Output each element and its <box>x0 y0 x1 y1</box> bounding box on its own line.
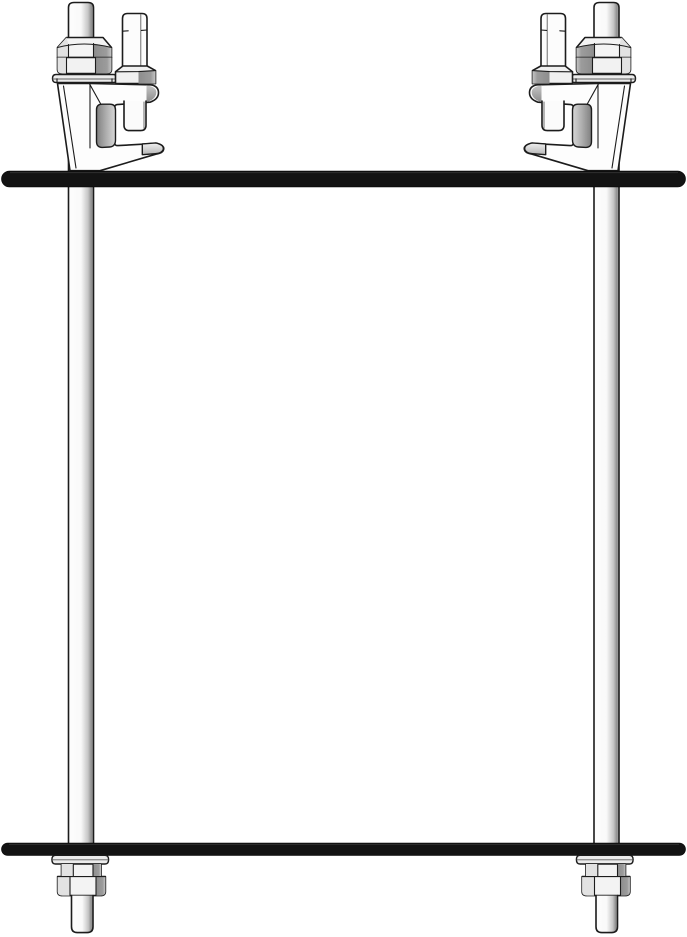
rod-nut-stack <box>58 38 112 74</box>
set-screw-shank-lower <box>124 101 146 131</box>
clamp-body <box>58 84 164 171</box>
lower-support-bar <box>2 843 686 856</box>
beam-clamp-top-right <box>524 14 635 171</box>
fastener-bottom-right <box>576 855 633 932</box>
drawing-canvas: Trapeze hanger assembly detail: two C-ty… <box>0 0 687 937</box>
upper-support-bar <box>2 171 686 187</box>
foot-tip <box>142 143 163 155</box>
rod-end <box>72 896 94 933</box>
bottom-hex-nut <box>58 864 106 896</box>
set-screw-shank-upper <box>123 14 148 67</box>
nut-facet <box>96 58 112 74</box>
nut-facet <box>139 71 156 84</box>
beam-clamp-top-left <box>53 14 164 171</box>
nut-facet <box>93 864 101 877</box>
nut-facet <box>96 877 105 896</box>
nut-facet <box>58 877 70 896</box>
rod-washer <box>53 75 118 83</box>
set-screw <box>116 14 156 131</box>
assembly-drawing: Trapeze hanger assembly detail: two C-ty… <box>0 0 687 937</box>
nut-facet <box>58 58 67 74</box>
fastener-bottom-left <box>52 855 109 932</box>
jaw-inner-face <box>97 104 116 147</box>
nut-facet <box>62 864 74 877</box>
bottom-washer <box>52 855 109 864</box>
